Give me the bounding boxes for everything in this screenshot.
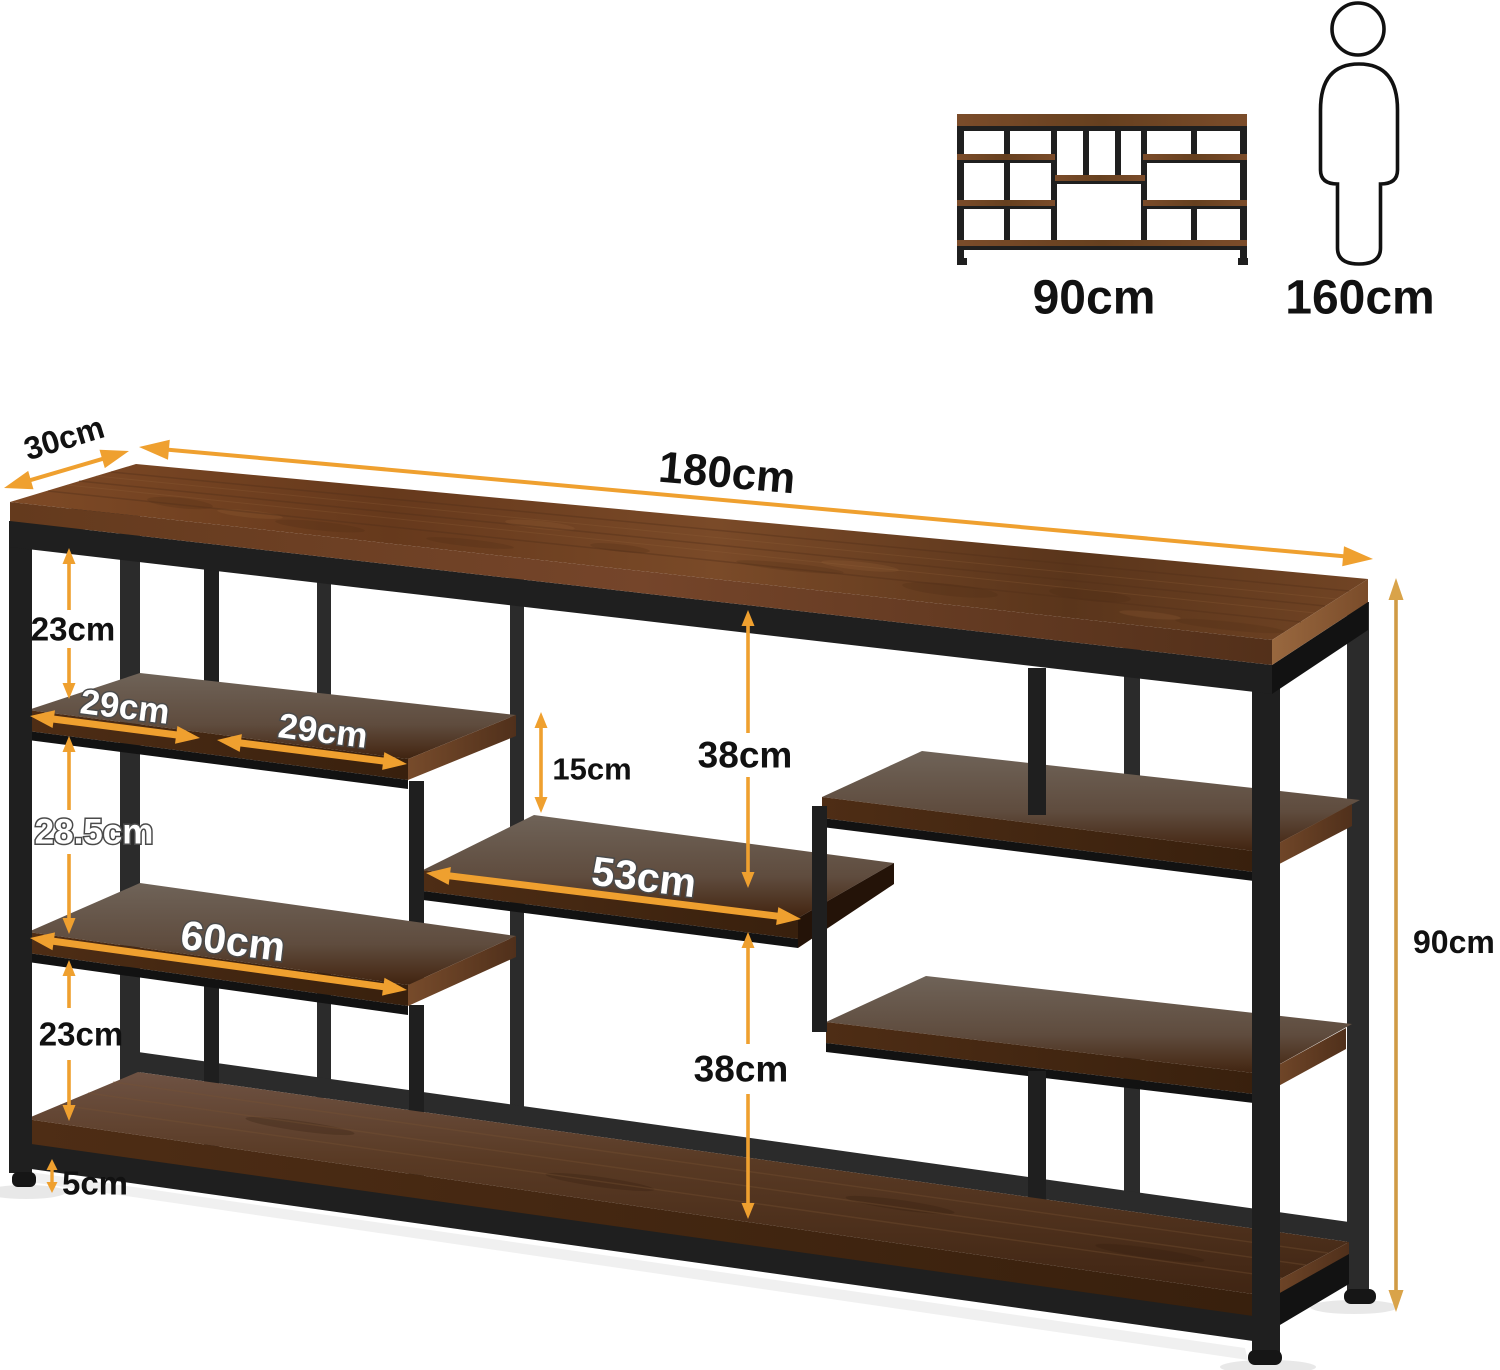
svg-text:23cm: 23cm (31, 611, 115, 648)
svg-text:160cm: 160cm (1285, 272, 1434, 325)
svg-text:23cm: 23cm (39, 1016, 123, 1053)
svg-text:28.5cm: 28.5cm (35, 813, 154, 852)
svg-text:90cm: 90cm (1033, 272, 1156, 325)
svg-text:38cm: 38cm (694, 1049, 789, 1090)
svg-text:38cm: 38cm (698, 735, 793, 776)
svg-text:5cm: 5cm (62, 1165, 128, 1202)
svg-text:90cm: 90cm (1413, 924, 1495, 960)
svg-text:15cm: 15cm (552, 752, 631, 787)
